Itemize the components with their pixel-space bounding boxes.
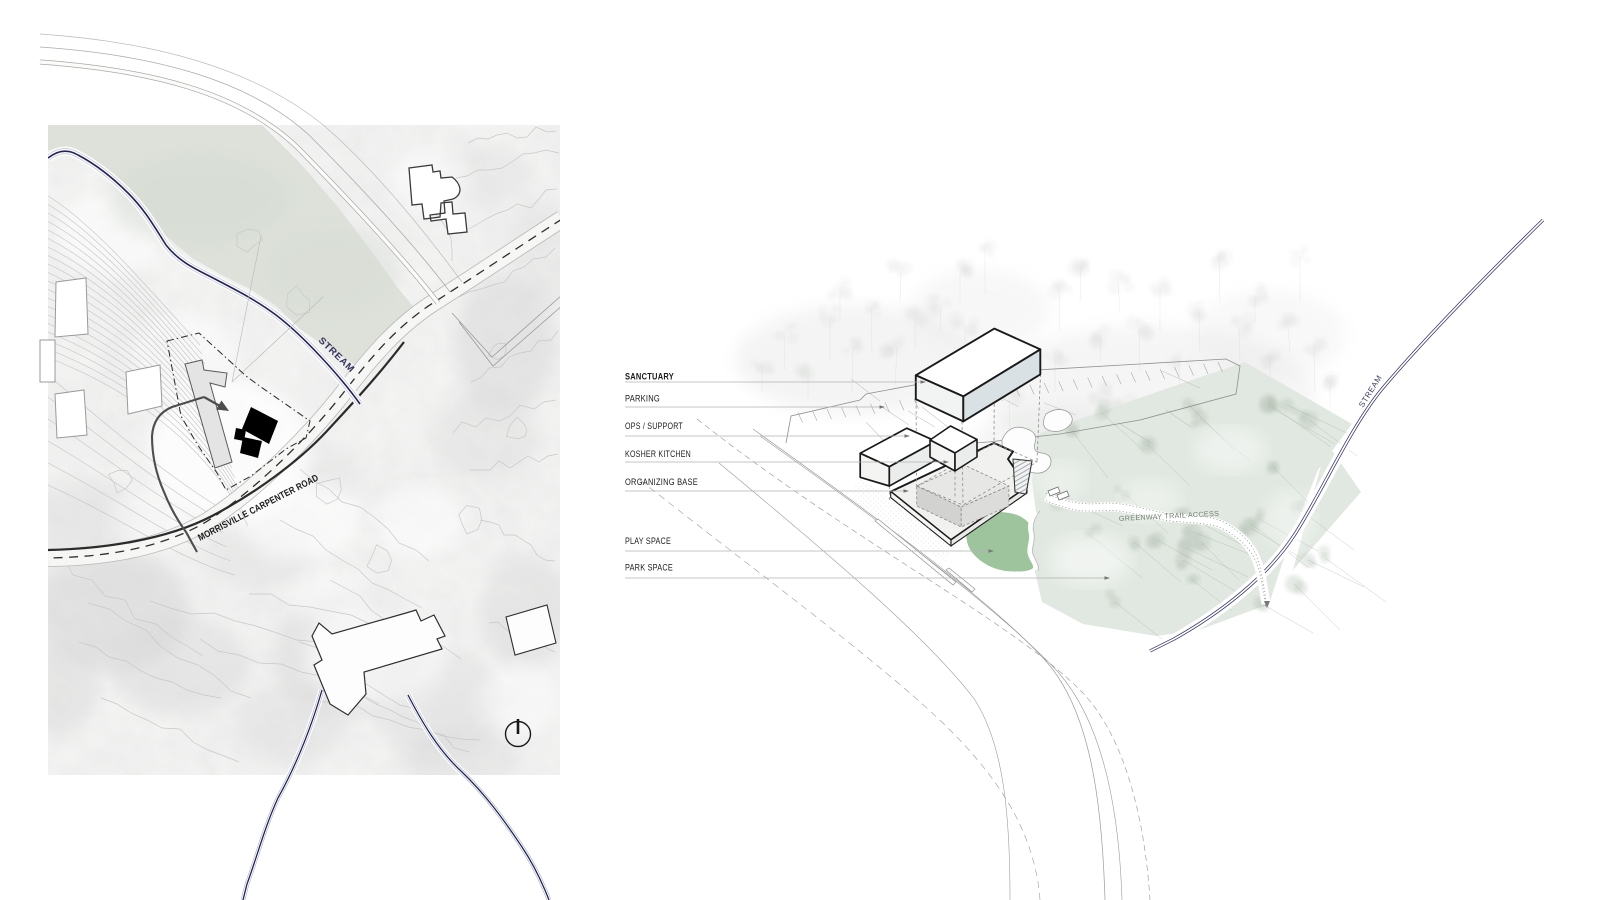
- svg-text:PARK SPACE: PARK SPACE: [625, 563, 673, 574]
- svg-text:SANCTUARY: SANCTUARY: [625, 372, 674, 383]
- svg-text:PARKING: PARKING: [625, 394, 660, 405]
- svg-text:KOSHER KITCHEN: KOSHER KITCHEN: [625, 449, 691, 460]
- svg-text:PLAY SPACE: PLAY SPACE: [625, 536, 671, 547]
- svg-text:OPS / SUPPORT: OPS / SUPPORT: [625, 421, 683, 432]
- svg-text:ORGANIZING BASE: ORGANIZING BASE: [625, 477, 698, 488]
